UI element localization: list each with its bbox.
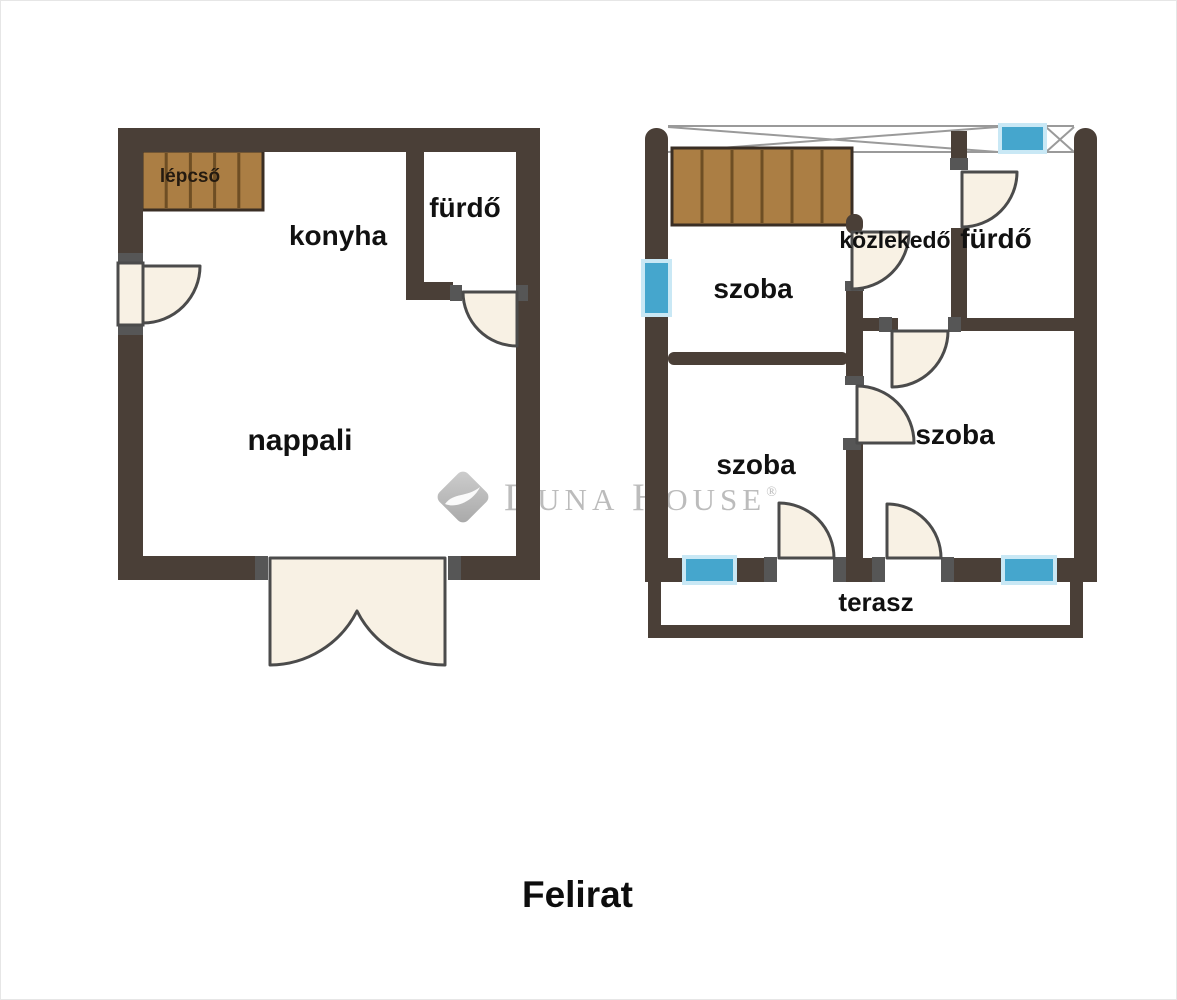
rp-left-wall-lower: [645, 313, 668, 582]
rp-room-divider-wall: [668, 352, 848, 365]
rp-center-wall-mid: [846, 288, 863, 380]
lp-right-wall: [516, 128, 540, 580]
lp-left-wall-lower: [118, 325, 143, 580]
window-bottom-left: [686, 559, 733, 581]
floor-plan-page: DUNA HOUSE® lépcsőkonyhafürdőnappaliszob…: [0, 0, 1177, 1000]
rp-room-door-swing-mid: [857, 386, 914, 443]
lp-bathroom-door-swing: [463, 292, 517, 346]
window-bottom-right: [1005, 559, 1053, 581]
room-label-konyha: konyha: [289, 220, 387, 251]
rp-center-wall-low: [846, 443, 863, 558]
door-frame-bracket: [448, 556, 461, 580]
rp-bottom-wall: [1053, 558, 1097, 582]
lp-bath-wall-horizontal: [406, 282, 453, 300]
window-left-wall: [645, 263, 668, 313]
room-label-terasz: terasz: [838, 587, 913, 617]
entry-door-swing: [143, 266, 200, 323]
door-frame-bracket: [833, 557, 846, 582]
room-label-kozlekedo: közlekedő: [839, 227, 950, 253]
room-label-furdo-right: fürdő: [960, 223, 1032, 254]
door-frame-bracket: [118, 326, 143, 335]
rp-left-wall-upper: [645, 150, 668, 263]
room-label-szoba-bottom-left: szoba: [716, 449, 796, 480]
door-frame-bracket: [941, 557, 954, 582]
double-terrace-door-swing: [270, 558, 445, 665]
lp-left-wall-upper: [118, 128, 143, 263]
lp-top-wall: [118, 128, 540, 152]
terrace-wall-bottom: [648, 625, 1083, 638]
caption-title: Felirat: [0, 874, 1166, 916]
door-frame-bracket: [764, 557, 777, 582]
room-label-nappali: nappali: [247, 424, 352, 457]
room-label-lepcso: lépcső: [160, 166, 220, 187]
door-frame-bracket: [255, 556, 268, 580]
room-label-szoba-bottom-right: szoba: [915, 419, 995, 450]
lp-bath-wall-vertical: [406, 152, 424, 283]
lp-bottom-wall-right: [461, 556, 540, 580]
door-frame-bracket: [450, 285, 462, 301]
room-label-furdo-left: fürdő: [429, 192, 501, 223]
rp-bottom-wall: [846, 558, 872, 582]
door-frame-bracket: [118, 253, 143, 262]
rp-bottom-wall: [954, 558, 1005, 582]
rp-bottom-wall: [645, 558, 686, 582]
door-frame-bracket: [872, 557, 885, 582]
door-frame-bracket: [845, 376, 864, 385]
rp-terrace-door-swing-left: [779, 503, 834, 558]
rp-bottom-wall: [733, 558, 764, 582]
room-label-szoba-top-left: szoba: [713, 273, 793, 304]
window-top-railing: [1002, 127, 1043, 150]
floor-plan-canvas: lépcsőkonyhafürdőnappaliszobaközlekedőfü…: [0, 0, 1177, 1000]
door-frame-bracket: [950, 158, 968, 170]
entry-door-leaf: [118, 263, 143, 325]
rp-terrace-door-swing-right: [887, 504, 941, 558]
lp-bottom-wall-left: [118, 556, 255, 580]
door-frame-bracket: [948, 317, 961, 332]
rp-hall-bottom-wall-right: [950, 318, 1074, 331]
rp-bathroom-door-swing: [962, 172, 1017, 227]
door-frame-bracket: [879, 317, 892, 332]
terrace-wall-right: [1070, 582, 1083, 638]
rp-right-wall: [1074, 150, 1097, 582]
rp-hall-door-swing: [892, 331, 948, 387]
